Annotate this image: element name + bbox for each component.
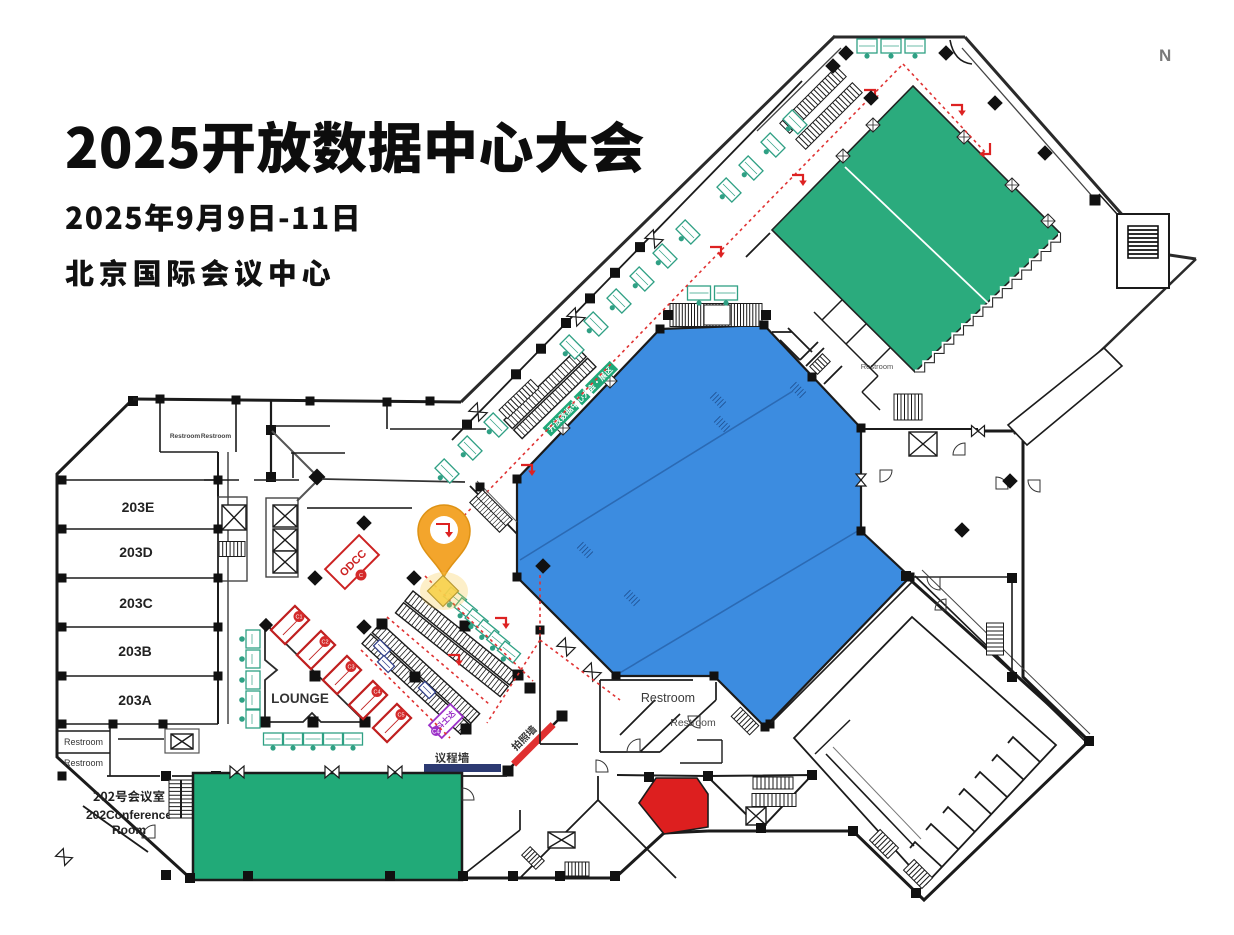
svg-text:N: N bbox=[1159, 46, 1171, 65]
svg-text:C4: C4 bbox=[373, 690, 380, 696]
svg-text:Restroom: Restroom bbox=[641, 691, 695, 705]
svg-text:Restroom: Restroom bbox=[170, 433, 201, 440]
svg-text:202Conference: 202Conference bbox=[86, 808, 172, 822]
svg-text:Room: Room bbox=[112, 823, 146, 837]
svg-text:203A: 203A bbox=[118, 692, 151, 708]
svg-text:203B: 203B bbox=[118, 643, 151, 659]
svg-text:Restroom: Restroom bbox=[201, 433, 232, 440]
svg-text:Restroom: Restroom bbox=[64, 758, 103, 768]
svg-text:C3: C3 bbox=[347, 665, 354, 671]
svg-text:C1: C1 bbox=[295, 615, 302, 621]
svg-text:203D: 203D bbox=[119, 544, 152, 560]
svg-text:203C: 203C bbox=[119, 595, 152, 611]
svg-text:LOUNGE: LOUNGE bbox=[271, 691, 329, 706]
svg-text:203E: 203E bbox=[122, 499, 155, 515]
svg-text:C5: C5 bbox=[397, 713, 404, 719]
svg-text:Restroom: Restroom bbox=[670, 717, 716, 729]
svg-text:C: C bbox=[359, 573, 363, 579]
svg-text:Restroom: Restroom bbox=[64, 737, 103, 747]
svg-text:C4: C4 bbox=[432, 730, 440, 736]
svg-text:C2: C2 bbox=[321, 640, 328, 646]
